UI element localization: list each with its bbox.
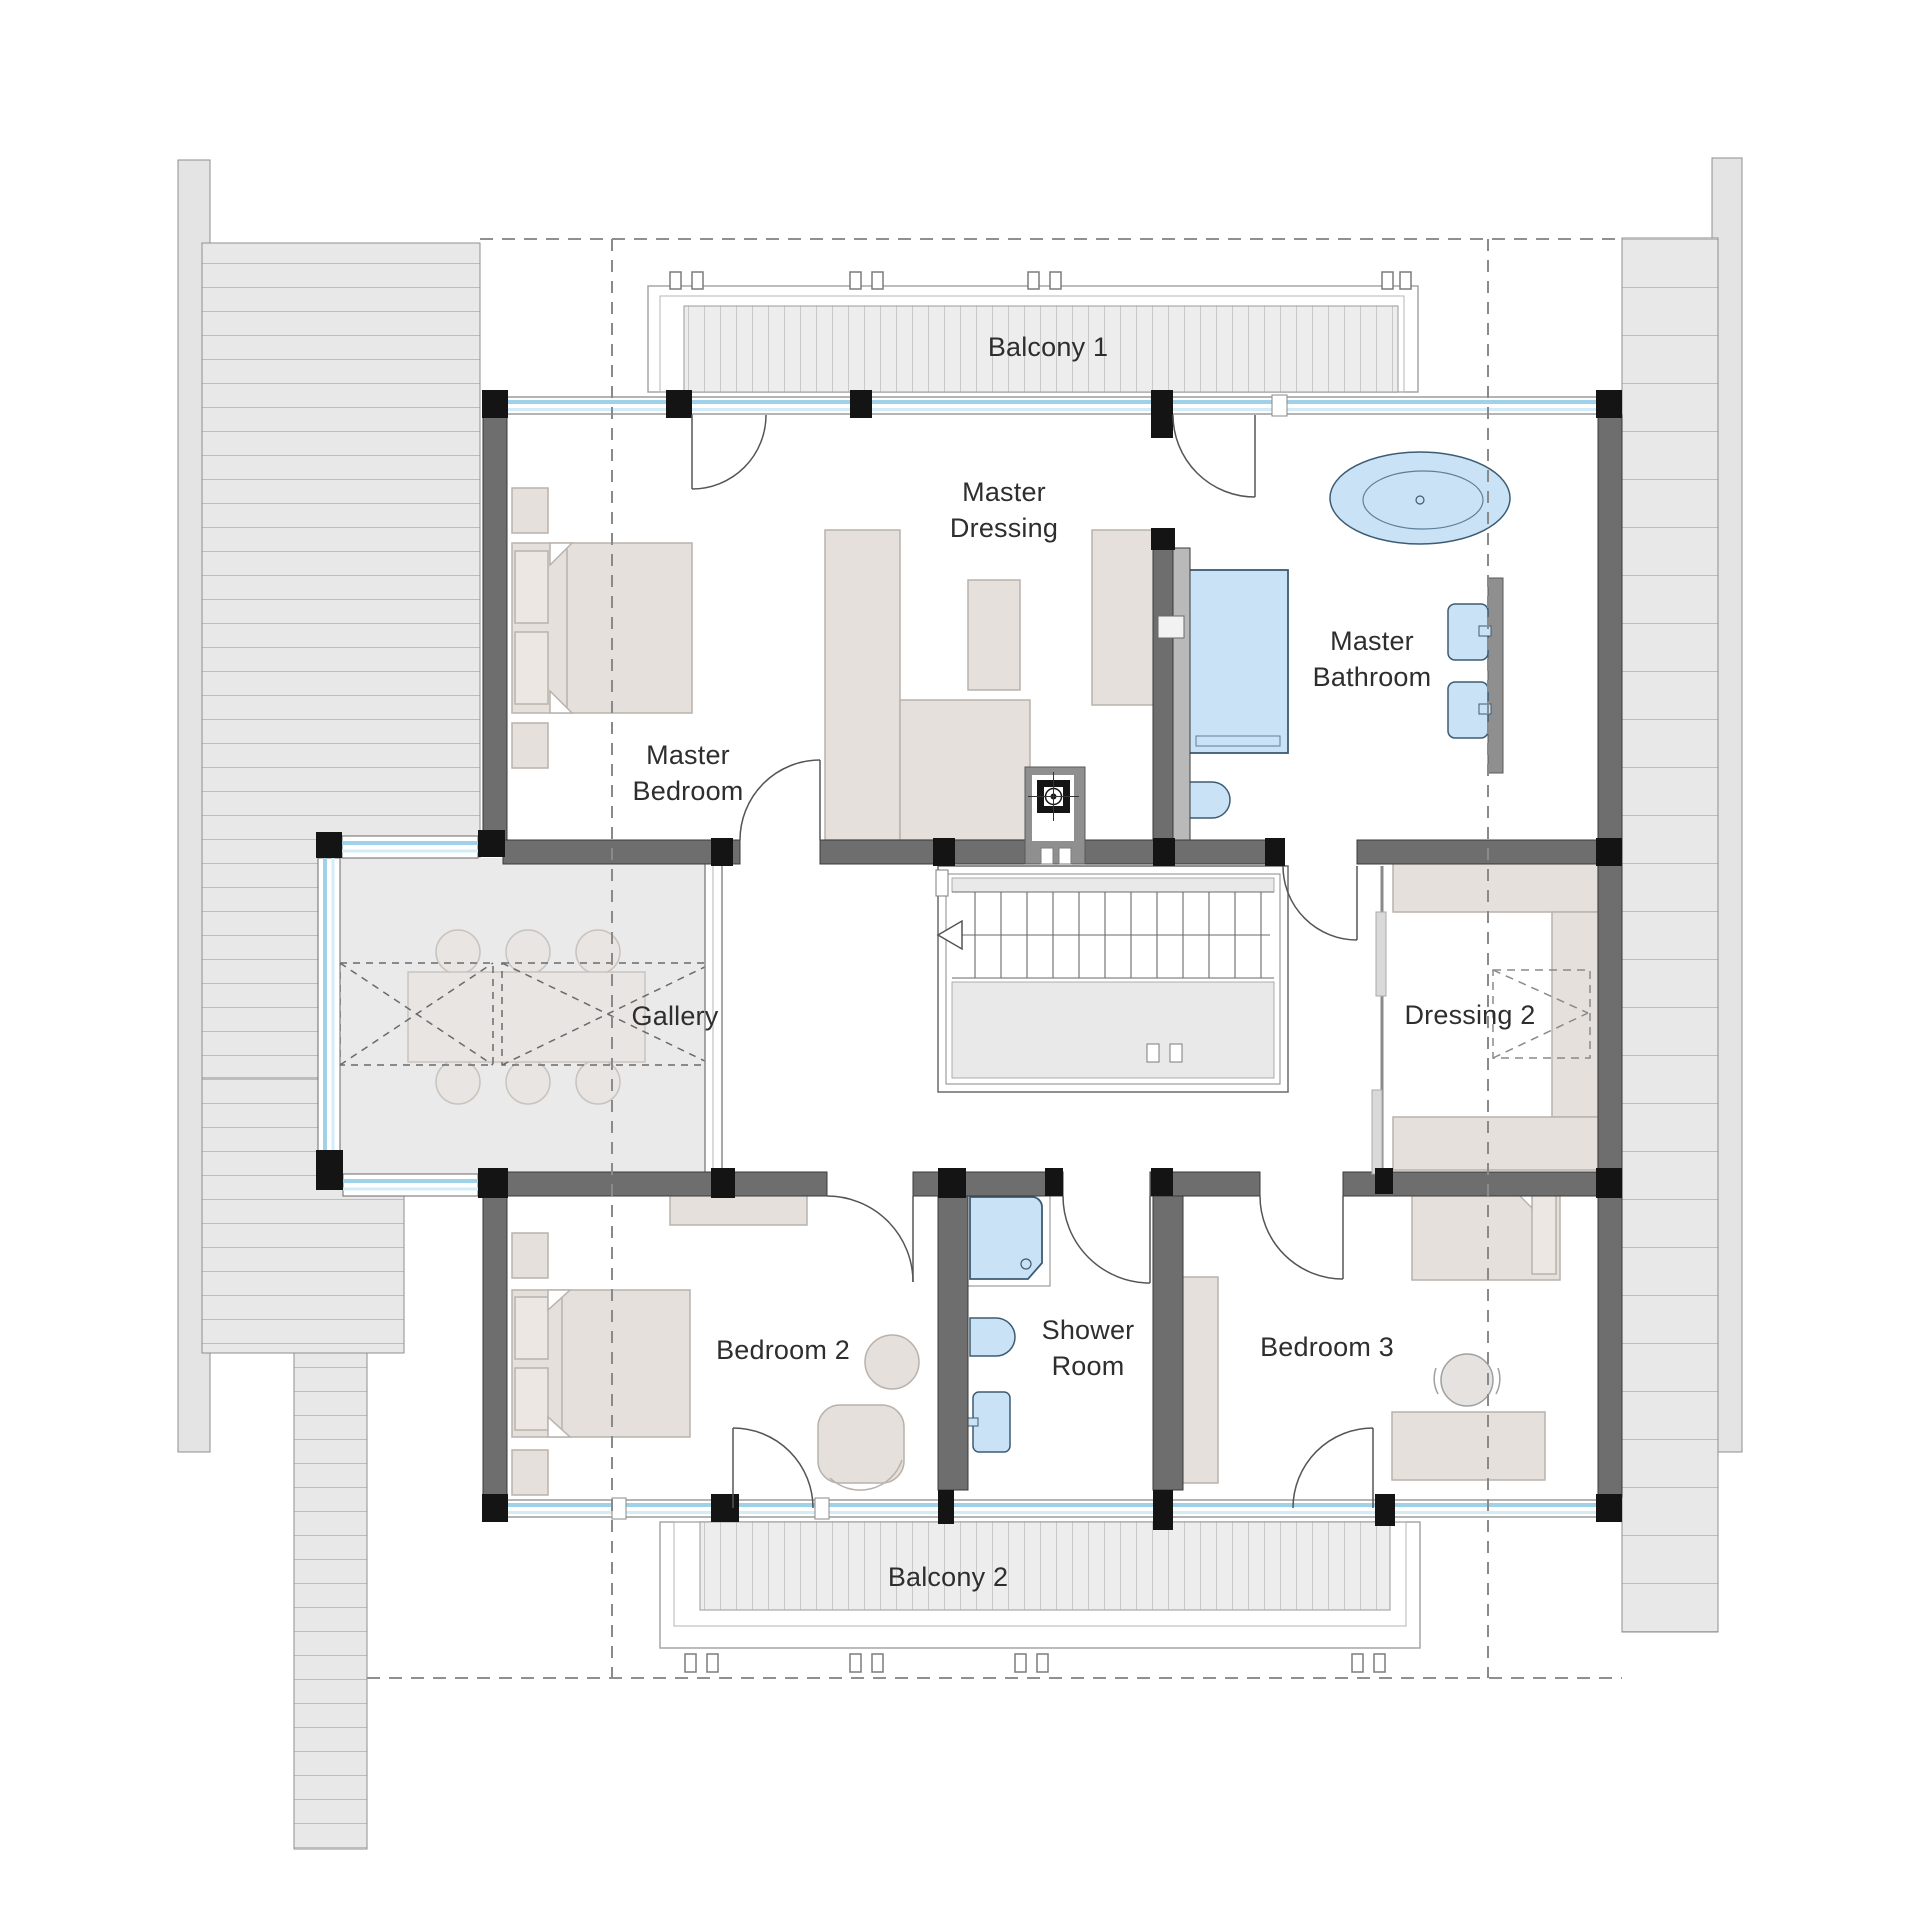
window-jamb: [815, 1498, 829, 1519]
master-dressing-furniture: [825, 530, 1155, 840]
wardrobe-right-arm: [1092, 530, 1155, 705]
wall-mid: [503, 840, 740, 864]
side-table: [865, 1335, 919, 1389]
nightstand: [512, 1233, 548, 1278]
room-label-dressing-2: Dressing 2: [1404, 997, 1535, 1033]
shower-room-fixtures: [966, 1192, 1050, 1452]
terrace-chair: [436, 1060, 480, 1104]
desk-chair: [1441, 1354, 1493, 1406]
wardrobe-side-panel: [1173, 548, 1190, 840]
door-arc: [1283, 866, 1357, 940]
room-label-bedroom-3: Bedroom 3: [1260, 1329, 1394, 1365]
nightstand: [512, 1450, 548, 1495]
sink-faucet: [1479, 626, 1491, 636]
stair-notch: [1147, 1044, 1159, 1062]
room-label-gallery: Gallery: [632, 998, 719, 1034]
nightstand: [512, 723, 548, 768]
wardrobe-bottom: [1393, 1117, 1598, 1170]
room-label-master-bathroom: Master Bathroom: [1313, 623, 1432, 695]
door-arc: [1173, 415, 1255, 497]
shower-enclosure: [1188, 570, 1288, 753]
wall-west-lower: [483, 1196, 507, 1497]
room-label-balcony-1: Balcony 1: [988, 329, 1108, 365]
washbasin: [973, 1392, 1010, 1452]
wardrobe-right: [1552, 912, 1598, 1117]
pillow: [515, 551, 548, 623]
window-band-south: [507, 1498, 1600, 1519]
stair-lower-landing: [952, 982, 1274, 1078]
stair-jamb: [936, 870, 948, 896]
pillow: [515, 1368, 548, 1430]
balcony-2: [660, 1522, 1420, 1672]
door-arc: [733, 1428, 813, 1508]
door-arc: [1260, 1196, 1343, 1279]
wall-mid: [820, 840, 1025, 864]
dresser: [670, 1192, 807, 1225]
shower-tray: [970, 1197, 1042, 1279]
door-arc: [827, 1196, 913, 1282]
nightstand: [512, 488, 548, 533]
door-arc: [692, 415, 766, 489]
master-bedroom-furniture: [512, 488, 692, 768]
terrace-dining-set: [408, 930, 645, 1104]
stair-notch: [1170, 1044, 1182, 1062]
room-label-shower-room: Shower Room: [1042, 1312, 1135, 1384]
wall-east: [1598, 415, 1622, 1497]
wardrobe-top: [1393, 862, 1598, 912]
wall-bedrooms-top: [503, 1172, 827, 1196]
wall-shower-west: [938, 1196, 968, 1490]
wall-mid: [1357, 840, 1598, 864]
wall-bedrooms-top: [913, 1172, 1063, 1196]
armchair: [818, 1405, 904, 1483]
roof-plane-right: [1622, 238, 1718, 1632]
roof-plane-left-bottom-strip: [294, 1353, 367, 1849]
terrace-chair: [506, 930, 550, 974]
toilet: [970, 1318, 1015, 1356]
pillow: [515, 1297, 548, 1359]
flue-jamb: [1041, 848, 1053, 864]
wardrobe-bottom-block: [900, 700, 1030, 840]
door-arc: [1063, 1196, 1150, 1283]
terrace-chair: [436, 930, 480, 974]
floor-plan-drawing: [0, 0, 1920, 1920]
sliding-door-panel: [1376, 912, 1386, 996]
terrace-chair: [576, 930, 620, 974]
room-label-master-bedroom: Master Bedroom: [633, 737, 744, 809]
door-arc: [1293, 1428, 1373, 1508]
door-arc: [740, 760, 820, 840]
wall-shower-east: [1153, 1196, 1183, 1490]
floor-plan: Balcony 1 Master Dressing Master Bathroo…: [0, 0, 1920, 1920]
room-label-master-dressing: Master Dressing: [950, 474, 1058, 546]
stair-top-landing: [952, 878, 1274, 892]
balcony-2-railing-posts: [685, 1654, 1385, 1672]
terrace-table: [408, 972, 645, 1062]
chair-armrest: [1496, 1368, 1500, 1394]
toilet: [1188, 782, 1230, 818]
wall-west-upper: [483, 415, 507, 840]
window-jamb: [1272, 395, 1287, 416]
room-label-balcony-2: Balcony 2: [888, 1559, 1008, 1595]
terrace-chair: [576, 1060, 620, 1104]
stairwell: [936, 866, 1288, 1092]
wardrobe-left-arm: [825, 530, 900, 840]
room-label-bedroom-2: Bedroom 2: [716, 1332, 850, 1368]
flue-jamb: [1059, 848, 1071, 864]
wall-mid: [1085, 840, 1283, 864]
desk: [1392, 1412, 1545, 1480]
sliding-door-panel: [1372, 1090, 1382, 1174]
chair-armrest: [1434, 1368, 1438, 1394]
terrace-chair: [506, 1060, 550, 1104]
chimney-flue: [1025, 767, 1085, 864]
window-jamb: [612, 1498, 626, 1519]
dressing-island: [968, 580, 1020, 690]
pocket-door-jamb: [1158, 616, 1184, 638]
wall-bathroom-partition: [1153, 548, 1173, 840]
vanity-counter: [1488, 578, 1503, 773]
balcony-2-deck: [700, 1522, 1390, 1610]
sink-faucet: [1479, 704, 1491, 714]
pillow: [515, 632, 548, 704]
pillow: [1532, 1194, 1556, 1274]
